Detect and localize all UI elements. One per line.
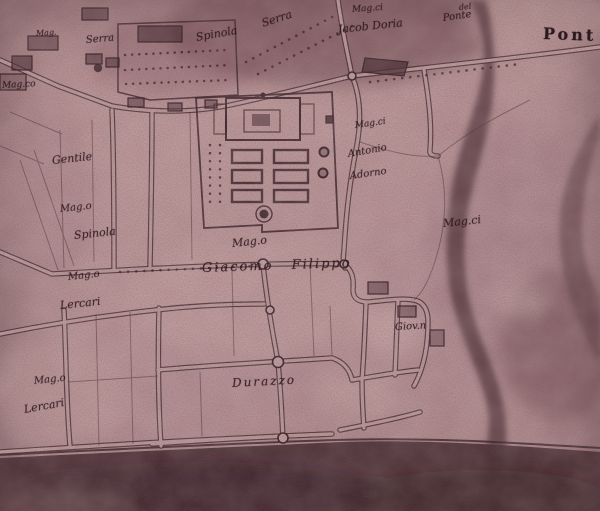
map-label-magci-adorno: Mag.ci — [354, 118, 386, 131]
map-label-magco-left: Mag.co — [2, 80, 36, 91]
map-labels: Mag. Serra Spinola Serra Mag.ci Jacob Do… — [0, 0, 600, 511]
map-label-durazzo: Durazzo — [232, 374, 297, 389]
map-label-jacob-doria: Jacob Doria — [337, 17, 403, 35]
scanned-map-photo: Mag. Serra Spinola Serra Mag.ci Jacob Do… — [0, 0, 600, 511]
map-label-mago-spinola: Mag.o — [59, 202, 92, 215]
map-label-mago-central: Mag.o — [231, 234, 267, 249]
map-label-giovn: Giov.n — [395, 321, 427, 333]
map-label-mag-topleft-tiny: Mag. — [36, 29, 57, 38]
map-label-magci-right: Mag.ci — [442, 214, 481, 229]
map-label-adorno: Adorno — [349, 167, 387, 182]
map-label-serra-top: Serra — [260, 9, 293, 29]
map-label-lercari-2: Lercari — [23, 397, 65, 415]
map-label-gentile: Gentile — [51, 151, 92, 166]
map-label-serra-topleft: Serra — [86, 34, 115, 46]
map-label-lercari-1: Lercari — [59, 296, 101, 311]
map-label-ponte-small: Ponte — [442, 10, 472, 24]
map-label-antonio: Antonio — [347, 143, 388, 160]
map-label-spinola-left: Spinola — [73, 226, 116, 241]
map-label-giacomo-filippo: Giacomo Filippo — [202, 257, 352, 275]
map-label-pont-large: Pont — [543, 26, 597, 44]
map-label-mago-lercari-2: Mag.o — [33, 374, 66, 387]
map-label-spinola-top: Spinola — [195, 25, 238, 43]
map-label-mago-lercari-1: Mag.o — [67, 270, 100, 283]
map-label-magci-doria: Mag.ci — [352, 4, 384, 15]
